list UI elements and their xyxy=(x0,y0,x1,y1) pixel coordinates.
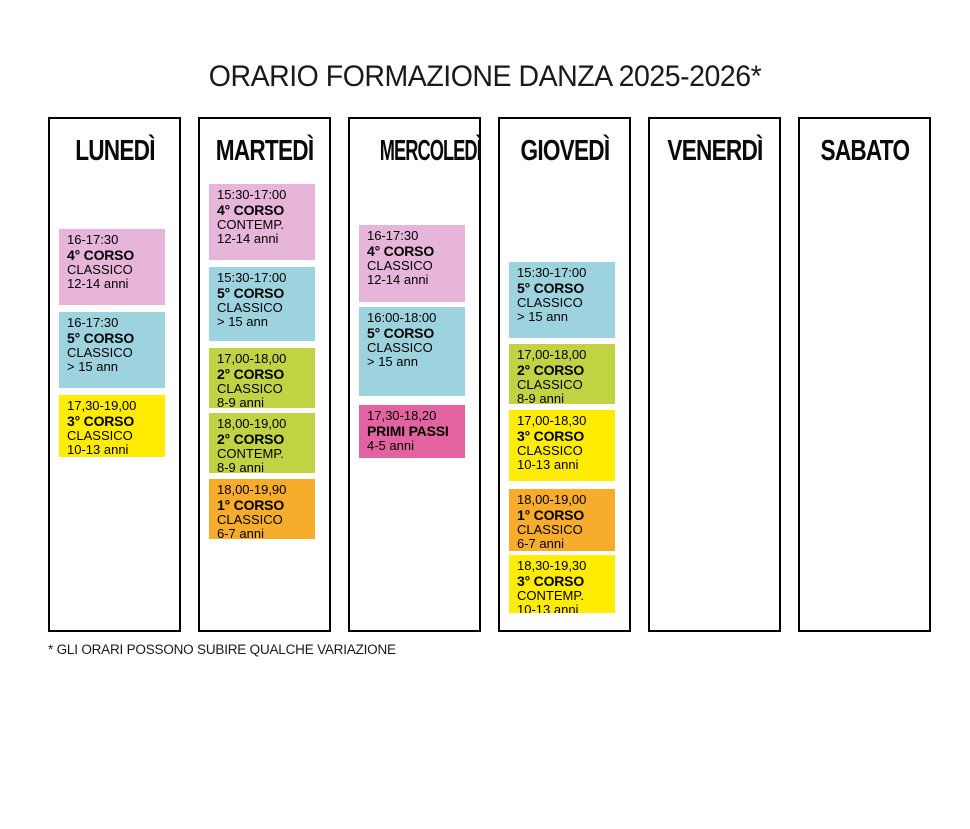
event-time: 15:30-17:00 xyxy=(517,266,613,281)
event-discipline: CLASSICO xyxy=(67,263,163,278)
event-course-name: 5° CORSO xyxy=(517,281,613,296)
event-course-name: 2° CORSO xyxy=(217,432,313,447)
event-time: 17,30-18,20 xyxy=(367,409,463,424)
event-time: 15:30-17:00 xyxy=(217,188,313,203)
day-label: VENERDÌ xyxy=(667,135,762,168)
page-title: ORARIO FORMAZIONE DANZA 2025-2026* xyxy=(24,60,946,94)
event-discipline: CLASSICO xyxy=(367,259,463,274)
event-time: 17,30-19,00 xyxy=(67,399,163,414)
event-course-name: 5° CORSO xyxy=(67,331,163,346)
event-course-name: PRIMI PASSI xyxy=(367,424,463,439)
event-discipline: CLASSICO xyxy=(517,296,613,311)
day-column-venerdi: VENERDÌ xyxy=(648,117,781,632)
event-discipline: CLASSICO xyxy=(517,523,613,538)
event-time: 17,00-18,00 xyxy=(517,348,613,363)
day-header: MERCOLEDÌ xyxy=(350,135,479,168)
event-block: 18,00-19,901° CORSOCLASSICO6-7 anni xyxy=(209,479,315,539)
day-header: SABATO xyxy=(800,135,929,168)
event-block: 18,00-19,002° CORSOCONTEMP.8-9 anni xyxy=(209,413,315,473)
event-course-name: 2° CORSO xyxy=(517,363,613,378)
event-age-range: 6-7 anni xyxy=(517,537,613,551)
day-header: GIOVEDÌ xyxy=(500,135,629,168)
event-age-range: 4-5 anni xyxy=(367,439,463,454)
event-block: 17,00-18,303° CORSOCLASSICO10-13 anni xyxy=(509,410,615,481)
event-time: 17,00-18,30 xyxy=(517,414,613,429)
event-age-range: 10-13 anni xyxy=(517,458,613,473)
event-discipline: CLASSICO xyxy=(367,341,463,356)
day-header: VENERDÌ xyxy=(650,135,779,168)
event-course-name: 4° CORSO xyxy=(67,248,163,263)
event-time: 16-17:30 xyxy=(67,233,163,248)
event-discipline: CLASSICO xyxy=(517,378,613,393)
event-block: 15:30-17:005° CORSOCLASSICO> 15 ann xyxy=(509,262,615,338)
event-age-range: 10-13 anni xyxy=(517,603,613,613)
day-column-giovedi: GIOVEDÌ15:30-17:005° CORSOCLASSICO> 15 a… xyxy=(498,117,631,632)
event-block: 15:30-17:004° CORSOCONTEMP.12-14 anni xyxy=(209,184,315,260)
event-discipline: CLASSICO xyxy=(217,301,313,316)
day-header: LUNEDÌ xyxy=(50,135,179,168)
event-block: 17,00-18,002° CORSOCLASSICO8-9 anni xyxy=(509,344,615,404)
event-discipline: CONTEMP. xyxy=(217,447,313,462)
event-time: 16-17:30 xyxy=(367,229,463,244)
event-course-name: 1° CORSO xyxy=(217,498,313,513)
schedule-board: LUNEDÌ16-17:304° CORSOCLASSICO12-14 anni… xyxy=(48,117,931,632)
event-course-name: 5° CORSO xyxy=(217,286,313,301)
event-age-range: 12-14 anni xyxy=(67,277,163,292)
event-block: 18,30-19,303° CORSOCONTEMP.10-13 anni xyxy=(509,555,615,613)
event-age-range: > 15 ann xyxy=(217,315,313,330)
event-block: 17,30-18,20PRIMI PASSI4-5 anni xyxy=(359,405,465,458)
event-block: 16-17:304° CORSOCLASSICO12-14 anni xyxy=(59,229,165,305)
day-column-mercoledi: MERCOLEDÌ16-17:304° CORSOCLASSICO12-14 a… xyxy=(348,117,481,632)
event-course-name: 4° CORSO xyxy=(217,203,313,218)
event-time: 18,00-19,90 xyxy=(217,483,313,498)
event-age-range: 8-9 anni xyxy=(517,392,613,404)
day-label: SABATO xyxy=(820,135,909,168)
event-discipline: CLASSICO xyxy=(217,382,313,397)
event-time: 18,00-19,00 xyxy=(217,417,313,432)
event-course-name: 3° CORSO xyxy=(517,574,613,589)
day-column-martedi: MARTEDÌ15:30-17:004° CORSOCONTEMP.12-14 … xyxy=(198,117,331,632)
event-time: 16-17:30 xyxy=(67,316,163,331)
event-age-range: 10-13 anni xyxy=(67,443,163,457)
event-block: 18,00-19,001° CORSOCLASSICO6-7 anni xyxy=(509,489,615,551)
event-course-name: 1° CORSO xyxy=(517,508,613,523)
event-time: 17,00-18,00 xyxy=(217,352,313,367)
event-age-range: > 15 ann xyxy=(367,355,463,370)
event-discipline: CLASSICO xyxy=(217,513,313,528)
event-age-range: 12-14 anni xyxy=(367,273,463,288)
day-column-sabato: SABATO xyxy=(798,117,931,632)
day-label: GIOVEDÌ xyxy=(520,135,609,168)
event-discipline: CLASSICO xyxy=(67,429,163,444)
event-age-range: 12-14 anni xyxy=(217,232,313,247)
event-discipline: CLASSICO xyxy=(517,444,613,459)
event-age-range: > 15 ann xyxy=(67,360,163,375)
event-age-range: 8-9 anni xyxy=(217,396,313,408)
day-label: MERCOLEDÌ xyxy=(380,135,481,168)
event-discipline: CONTEMP. xyxy=(217,218,313,233)
event-age-range: 6-7 anni xyxy=(217,527,313,539)
schedule-footnote: * GLI ORARI POSSONO SUBIRE QUALCHE VARIA… xyxy=(48,642,396,657)
day-label: LUNEDÌ xyxy=(75,135,155,168)
day-header: MARTEDÌ xyxy=(200,135,329,168)
event-course-name: 3° CORSO xyxy=(67,414,163,429)
event-age-range: 8-9 anni xyxy=(217,461,313,473)
event-block: 17,00-18,002° CORSOCLASSICO8-9 anni xyxy=(209,348,315,408)
event-course-name: 3° CORSO xyxy=(517,429,613,444)
event-discipline: CONTEMP. xyxy=(517,589,613,604)
event-time: 16:00-18:00 xyxy=(367,311,463,326)
event-course-name: 5° CORSO xyxy=(367,326,463,341)
event-block: 17,30-19,003° CORSOCLASSICO10-13 anni xyxy=(59,395,165,457)
event-block: 16-17:305° CORSOCLASSICO> 15 ann xyxy=(59,312,165,388)
event-time: 18,00-19,00 xyxy=(517,493,613,508)
event-discipline: CLASSICO xyxy=(67,346,163,361)
event-block: 16-17:304° CORSOCLASSICO12-14 anni xyxy=(359,225,465,302)
event-age-range: > 15 ann xyxy=(517,310,613,325)
event-course-name: 4° CORSO xyxy=(367,244,463,259)
event-block: 15:30-17:005° CORSOCLASSICO> 15 ann xyxy=(209,267,315,341)
event-course-name: 2° CORSO xyxy=(217,367,313,382)
event-time: 15:30-17:00 xyxy=(217,271,313,286)
event-time: 18,30-19,30 xyxy=(517,559,613,574)
day-label: MARTEDÌ xyxy=(216,135,314,168)
day-column-lunedi: LUNEDÌ16-17:304° CORSOCLASSICO12-14 anni… xyxy=(48,117,181,632)
event-block: 16:00-18:005° CORSOCLASSICO> 15 ann xyxy=(359,307,465,396)
